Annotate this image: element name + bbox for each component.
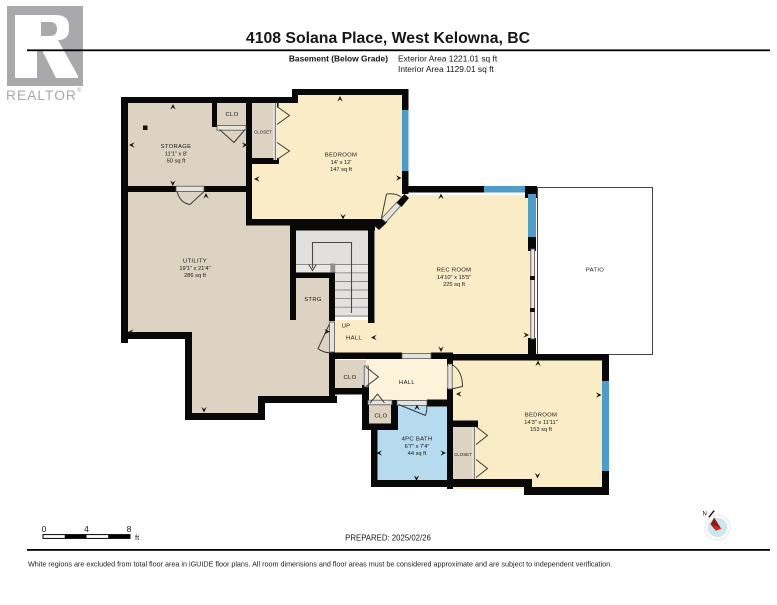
svg-text:44 sq ft: 44 sq ft xyxy=(408,451,427,457)
svg-text:Basement (Below Grade): Basement (Below Grade) xyxy=(289,54,388,64)
svg-text:147 sq ft: 147 sq ft xyxy=(330,167,352,173)
svg-text:STORAGE: STORAGE xyxy=(161,144,192,150)
svg-text:6'7" x 7'4": 6'7" x 7'4" xyxy=(405,444,430,450)
svg-text:REC ROOM: REC ROOM xyxy=(437,268,472,274)
svg-text:®: ® xyxy=(77,87,82,94)
svg-text:CLO: CLO xyxy=(225,112,238,118)
svg-text:ft: ft xyxy=(135,533,140,542)
svg-text:HALL: HALL xyxy=(346,336,362,342)
svg-text:14'3" x 11'11": 14'3" x 11'11" xyxy=(524,420,558,426)
svg-text:PREPARED: 2025/02/26: PREPARED: 2025/02/26 xyxy=(345,534,431,543)
svg-text:14' x 12': 14' x 12' xyxy=(331,160,352,166)
svg-text:UTILITY: UTILITY xyxy=(183,259,207,265)
svg-text:HALL: HALL xyxy=(399,380,415,386)
svg-text:11'1" x 8': 11'1" x 8' xyxy=(165,152,187,158)
svg-text:50 sq ft: 50 sq ft xyxy=(167,159,186,165)
svg-text:STRG: STRG xyxy=(304,297,322,303)
svg-text:4PC BATH: 4PC BATH xyxy=(402,437,433,443)
svg-text:White regions are excluded fro: White regions are excluded from total fl… xyxy=(28,560,612,569)
svg-text:8: 8 xyxy=(127,524,132,534)
svg-text:REALTOR: REALTOR xyxy=(6,88,77,103)
svg-text:PATIO: PATIO xyxy=(586,268,604,274)
svg-text:19'1" x 21'4": 19'1" x 21'4" xyxy=(179,266,210,272)
svg-text:BEDROOM: BEDROOM xyxy=(525,413,558,419)
svg-text:Interior Area 1129.01 sq ft: Interior Area 1129.01 sq ft xyxy=(398,64,494,74)
svg-text:BEDROOM: BEDROOM xyxy=(325,153,358,159)
svg-text:153 sq ft: 153 sq ft xyxy=(530,427,552,433)
svg-text:CLOSET: CLOSET xyxy=(454,452,472,457)
svg-text:225 sq ft: 225 sq ft xyxy=(443,282,465,288)
svg-text:N: N xyxy=(703,512,707,518)
svg-text:0: 0 xyxy=(42,524,47,534)
svg-text:UP: UP xyxy=(342,324,351,330)
svg-text:14'10" x 15'5": 14'10" x 15'5" xyxy=(437,275,471,281)
svg-text:CLOSET: CLOSET xyxy=(254,130,272,135)
svg-text:4: 4 xyxy=(84,524,89,534)
svg-text:286 sq ft: 286 sq ft xyxy=(184,273,206,279)
svg-text:4108 Solana Place, West Kelown: 4108 Solana Place, West Kelowna, BC xyxy=(246,30,530,47)
svg-text:Exterior Area 1221.01 sq ft: Exterior Area 1221.01 sq ft xyxy=(398,54,498,64)
svg-text:CLO: CLO xyxy=(343,375,356,381)
svg-text:CLO: CLO xyxy=(374,414,387,420)
